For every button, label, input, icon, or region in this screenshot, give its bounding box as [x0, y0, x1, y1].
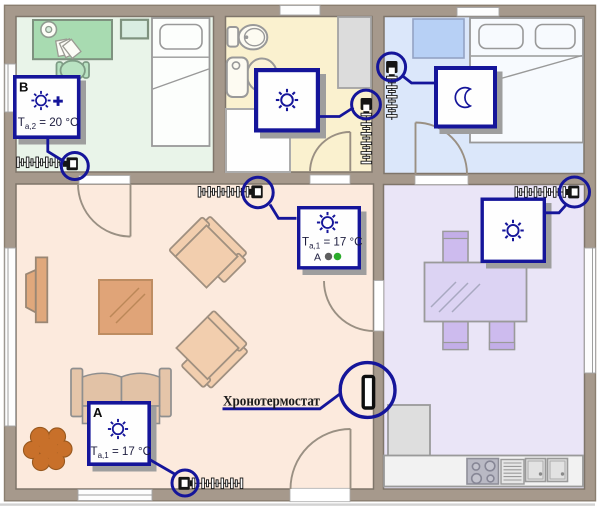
svg-text:Хронотермостат: Хронотермостат — [223, 394, 321, 410]
svg-text:B: B — [19, 80, 28, 95]
svg-text:A: A — [314, 251, 321, 263]
svg-text:A: A — [93, 405, 103, 420]
